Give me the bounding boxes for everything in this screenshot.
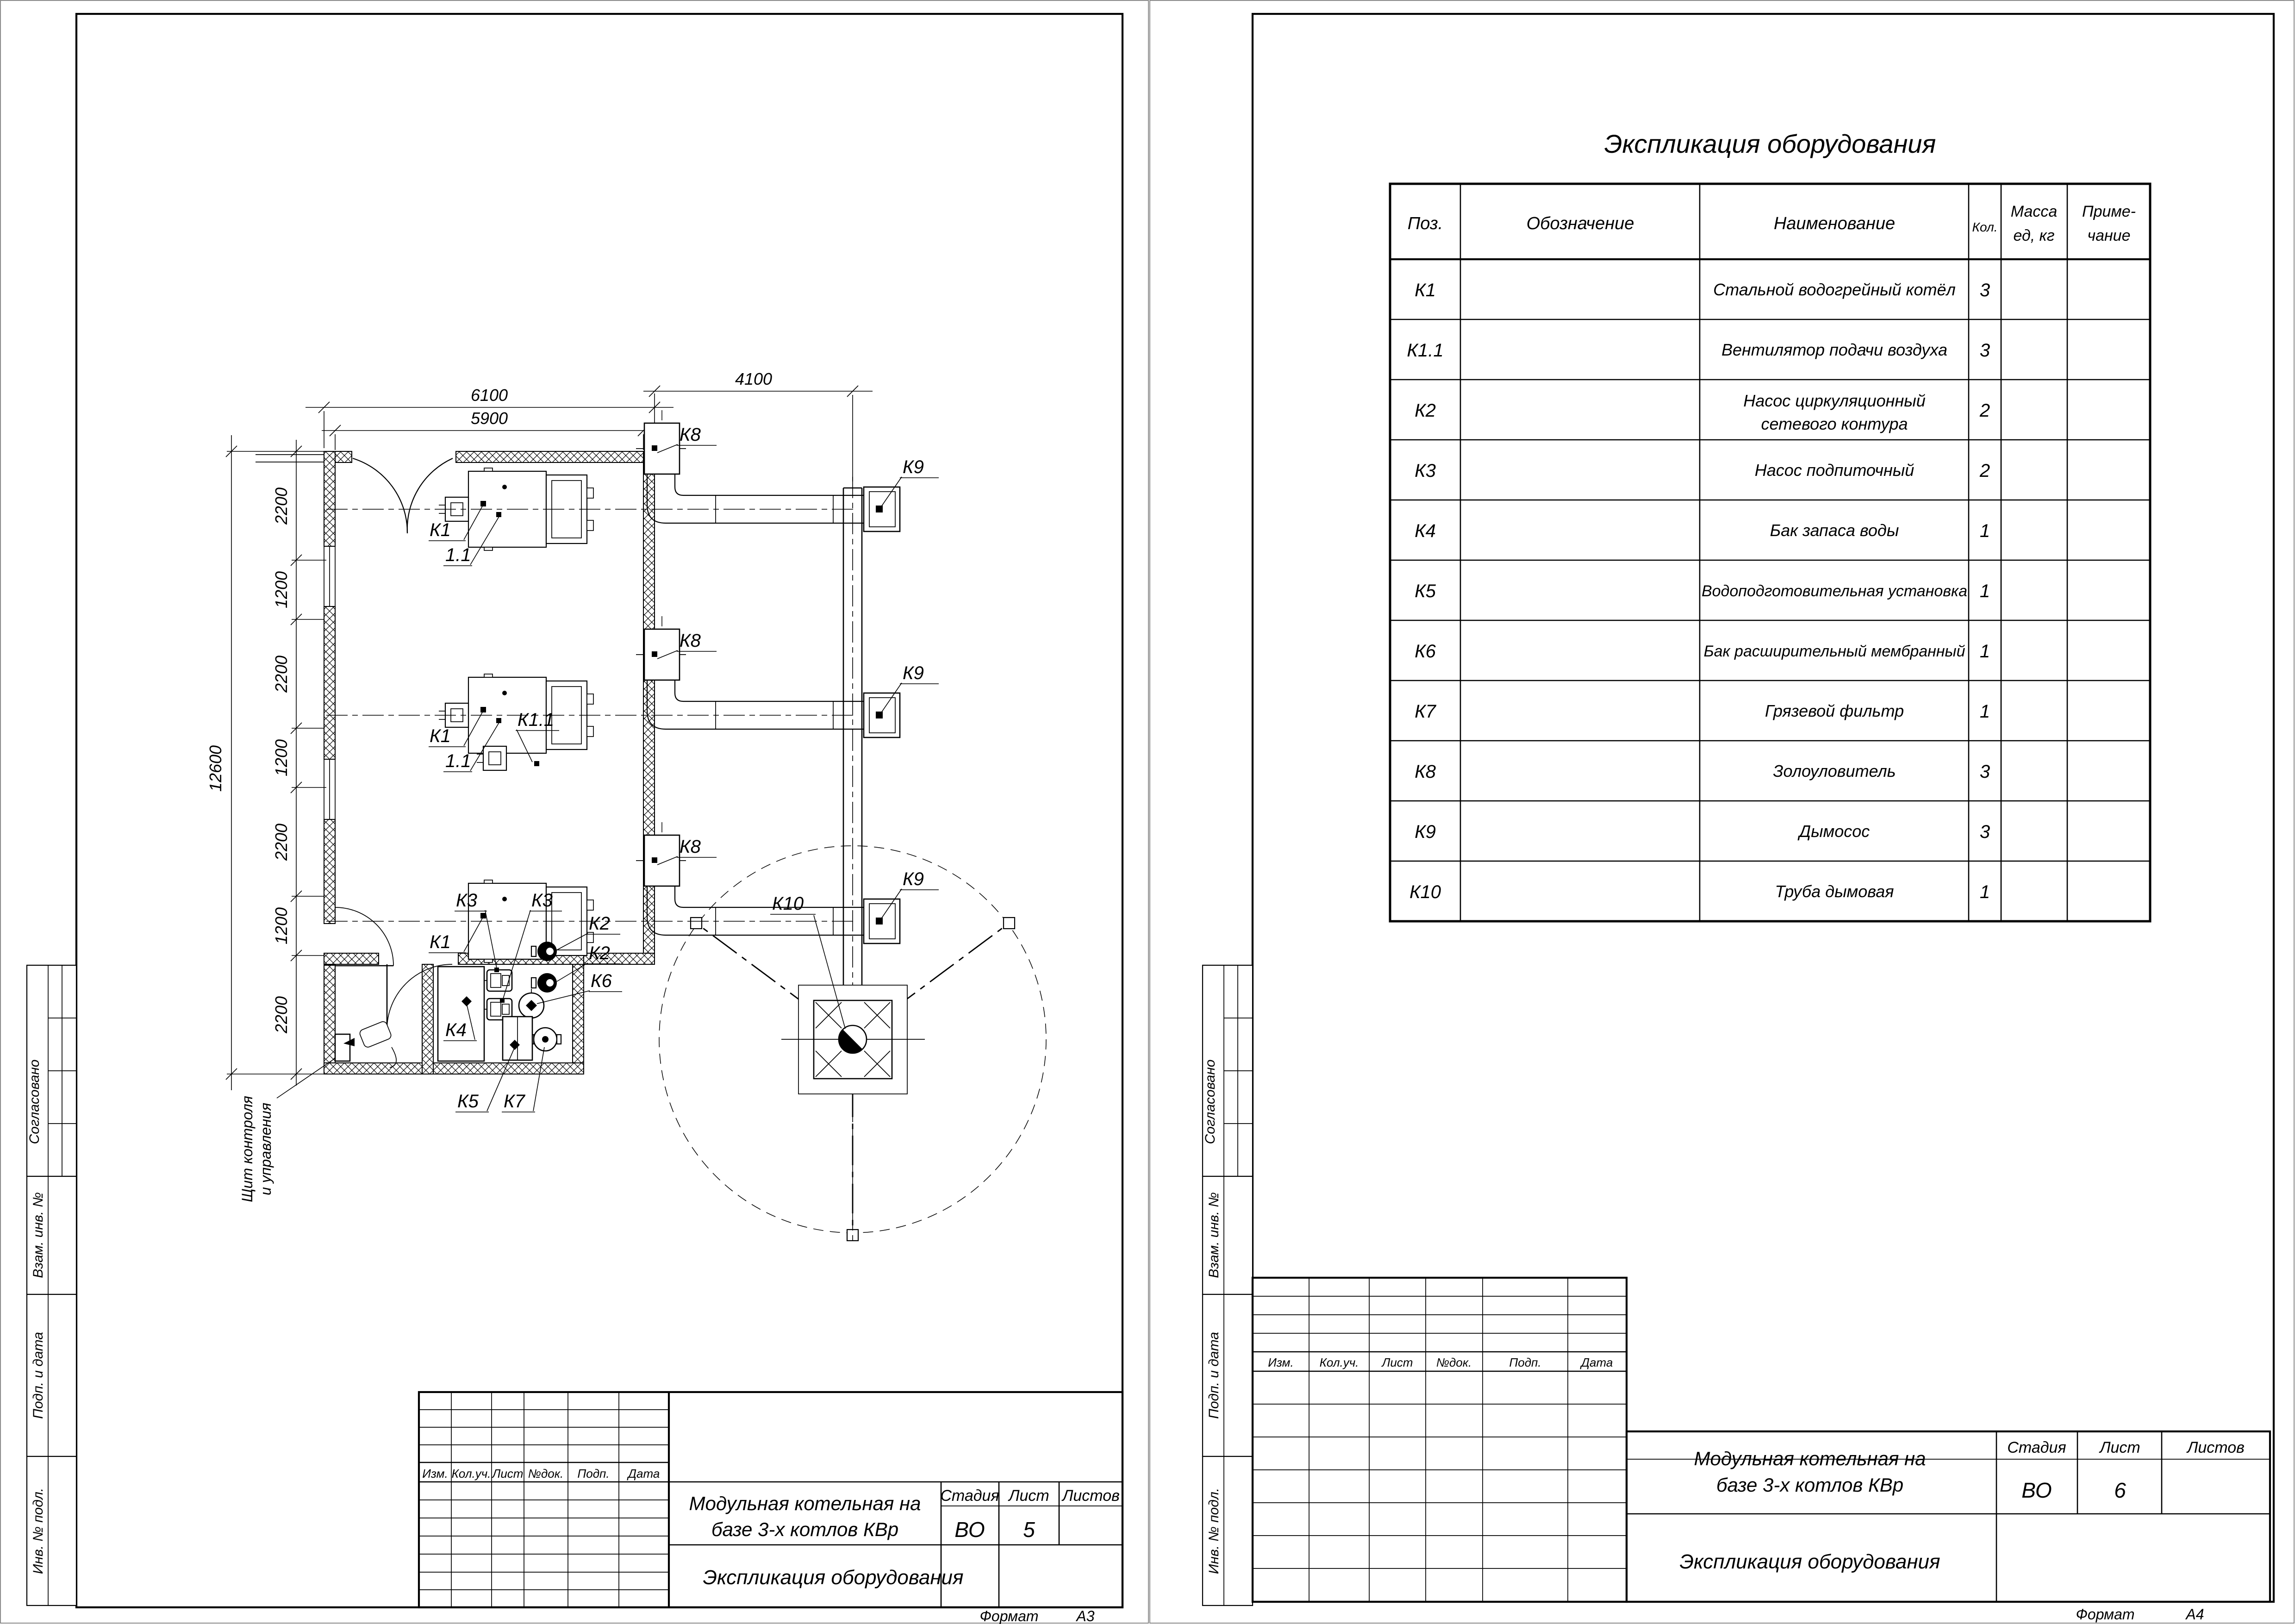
stage-label: Стадия xyxy=(940,1487,999,1505)
cell-name: Золоуловитель xyxy=(1773,762,1896,781)
sheets-label: Листов xyxy=(1061,1487,1120,1505)
col-header-qty: Кол. xyxy=(1972,220,1997,234)
col-header-note1: Приме- xyxy=(2082,203,2136,220)
rev-ndok: №док. xyxy=(528,1467,564,1480)
label-k2-2: К2 xyxy=(589,943,610,963)
format-value: А3 xyxy=(1075,1608,1094,1624)
cell-qty: 1 xyxy=(1980,701,1990,722)
dim-2200-value: 2200 xyxy=(272,656,291,693)
label-k3-2: К3 xyxy=(531,890,553,911)
sheet-label: Лист xyxy=(2099,1439,2140,1456)
cell-pos: К9 xyxy=(1415,822,1436,842)
cell-qty: 3 xyxy=(1980,762,1990,782)
dim-2200-value: 2200 xyxy=(272,487,291,525)
cell-qty: 2 xyxy=(1979,400,1990,421)
label-fan-2: 1.1 xyxy=(445,751,471,771)
format-value: А4 xyxy=(2185,1606,2204,1623)
doc-type: Экспликация оборудования xyxy=(1679,1550,1940,1573)
cell-name: Насос подпиточный xyxy=(1755,461,1915,480)
chimney-foundation xyxy=(781,985,925,1094)
format-label: Формат xyxy=(2076,1606,2134,1623)
stage-value: ВО xyxy=(954,1518,985,1542)
rev-koluch: Кол.уч. xyxy=(452,1467,491,1480)
label-k3-1: К3 xyxy=(456,890,477,911)
cell-name: Насос циркуляционный xyxy=(1743,391,1926,410)
doc-title-line1: Модульная котельная на xyxy=(689,1493,921,1514)
format-label: Формат xyxy=(979,1608,1038,1624)
cell-name: Дымосос xyxy=(1797,822,1870,841)
label-k8-2: К8 xyxy=(680,631,701,651)
dim-1200-value: 1200 xyxy=(272,907,291,944)
doc-title-line2: базе 3-х котлов КВр xyxy=(1716,1474,1903,1496)
note-line1: Щит контроля xyxy=(239,1096,256,1202)
cell-name: Вентилятор подачи воздуха xyxy=(1721,340,1947,359)
sheets-label: Листов xyxy=(2186,1439,2245,1456)
rev-izm: Изм. xyxy=(422,1467,448,1480)
cell-pos: К4 xyxy=(1415,521,1436,541)
dim-5900-value: 5900 xyxy=(471,409,508,428)
margin-approved-label: Согласовано xyxy=(27,1060,42,1144)
col-header-mass2: ед, кг xyxy=(2013,227,2054,244)
cell-name: Труба дымовая xyxy=(1775,882,1894,901)
doc-type: Экспликация оборудования xyxy=(703,1566,963,1589)
stage-value: ВО xyxy=(2021,1478,2052,1502)
dim-2200-value: 2200 xyxy=(272,996,291,1034)
two-sheet-drawing: Согласовано Взам. инв. № Подп. и дата Ин… xyxy=(0,0,2295,1624)
margin-approved-label: Согласовано xyxy=(1203,1060,1218,1144)
cell-name2: сетевого контура xyxy=(1761,414,1908,433)
cell-qty: 2 xyxy=(1979,461,1990,481)
cell-pos: К3 xyxy=(1415,461,1436,481)
rev-data: Дата xyxy=(627,1467,660,1480)
cell-qty: 1 xyxy=(1980,882,1990,902)
col-header-note2: чание xyxy=(2087,227,2130,244)
cell-pos: К1 xyxy=(1415,280,1436,300)
dim-6100-value: 6100 xyxy=(471,386,508,405)
doc-title-line1: Модульная котельная на xyxy=(1694,1448,1926,1469)
cell-pos: К7 xyxy=(1415,701,1437,722)
rev-izm: Изм. xyxy=(1268,1355,1293,1369)
margin-sign-date-label: Подп. и дата xyxy=(31,1332,46,1419)
water-treatment-k5 xyxy=(503,1017,532,1060)
dim-12600-value: 12600 xyxy=(206,745,225,792)
cell-name: Стальной водогрейный котёл xyxy=(1713,280,1956,299)
label-fan-1: 1.1 xyxy=(445,545,471,565)
cell-name: Грязевой фильтр xyxy=(1765,701,1904,720)
label-k5: К5 xyxy=(457,1091,479,1112)
sheet-label: Лист xyxy=(1008,1487,1049,1505)
rev-ndok: №док. xyxy=(1436,1355,1472,1369)
rev-data: Дата xyxy=(1580,1355,1613,1369)
cell-name: Водоподготовительная установка xyxy=(1702,582,1967,600)
margin-inv-orig-label: Инв. № подл. xyxy=(31,1488,46,1574)
doc-title-line2: базе 3-х котлов КВр xyxy=(711,1518,898,1540)
rev-list: Лист xyxy=(492,1467,524,1480)
label-k9-2: К9 xyxy=(903,663,924,683)
rev-list: Лист xyxy=(1381,1355,1413,1369)
label-k2-1: К2 xyxy=(589,913,610,934)
dim-2200-value: 2200 xyxy=(272,824,291,861)
col-header-mass1: Масса xyxy=(2011,203,2058,220)
right-sheet-margin-blocks: Согласовано Взам. инв. № Подп. и дата Ин… xyxy=(1203,965,1253,1605)
dim-1200-value: 1200 xyxy=(272,571,291,608)
dim-4100-value: 4100 xyxy=(735,369,772,388)
rev-koluch: Кол.уч. xyxy=(1320,1355,1359,1369)
water-tank-k4 xyxy=(438,967,484,1061)
cell-qty: 3 xyxy=(1980,822,1990,842)
margin-sign-date-label: Подп. и дата xyxy=(1206,1332,1222,1419)
label-k1-2: К1 xyxy=(430,726,451,746)
label-k1-1-fan: К1.1 xyxy=(518,710,554,730)
col-header-pos: Поз. xyxy=(1408,214,1443,233)
note-line2: и управления xyxy=(257,1103,274,1195)
col-header-designation: Обозначение xyxy=(1527,214,1634,233)
cell-qty: 3 xyxy=(1980,340,1990,361)
table-title: Экспликация оборудования xyxy=(1604,129,1936,158)
cell-pos: К10 xyxy=(1409,882,1441,902)
cell-pos: К8 xyxy=(1415,762,1436,782)
cell-qty: 1 xyxy=(1980,641,1990,662)
sheet-number: 5 xyxy=(1023,1518,1035,1542)
cell-pos: К1.1 xyxy=(1407,340,1443,361)
cell-qty: 1 xyxy=(1980,581,1990,601)
margin-inv-orig-label: Инв. № подл. xyxy=(1206,1488,1222,1574)
cell-qty: 1 xyxy=(1980,521,1990,541)
cell-pos: К5 xyxy=(1415,581,1436,601)
margin-replace-inv-label: Взам. инв. № xyxy=(31,1192,46,1278)
rev-podp: Подп. xyxy=(1509,1355,1541,1369)
cell-pos: К6 xyxy=(1415,641,1436,662)
cell-pos: К2 xyxy=(1415,400,1436,421)
label-k6: К6 xyxy=(591,971,612,991)
dim-1200-value: 1200 xyxy=(272,739,291,776)
stage-label: Стадия xyxy=(2007,1439,2066,1456)
margin-replace-inv-label: Взам. инв. № xyxy=(1206,1192,1222,1278)
sheet-number: 6 xyxy=(2114,1478,2126,1502)
drawing-canvas: Согласовано Взам. инв. № Подп. и дата Ин… xyxy=(0,0,2295,1624)
label-k1-1: К1 xyxy=(430,520,451,540)
label-k7: К7 xyxy=(504,1091,526,1112)
cell-qty: 3 xyxy=(1980,280,1990,300)
label-k8-3: К8 xyxy=(680,837,701,857)
label-k8-1: К8 xyxy=(680,425,701,445)
label-k4: К4 xyxy=(445,1020,467,1040)
label-k10: К10 xyxy=(772,893,804,914)
cell-name: Бак запаса воды xyxy=(1770,521,1899,540)
label-k9-3: К9 xyxy=(903,869,924,889)
rev-podp: Подп. xyxy=(577,1467,609,1480)
left-sheet-margin-blocks: Согласовано Взам. инв. № Подп. и дата Ин… xyxy=(27,965,76,1605)
label-k9-1: К9 xyxy=(903,457,924,477)
label-k1-3: К1 xyxy=(430,932,451,952)
col-header-name: Наименование xyxy=(1774,214,1895,233)
sheet-left-a3 xyxy=(0,0,1148,1623)
cell-name: Бак расширительный мембранный xyxy=(1704,643,1965,660)
